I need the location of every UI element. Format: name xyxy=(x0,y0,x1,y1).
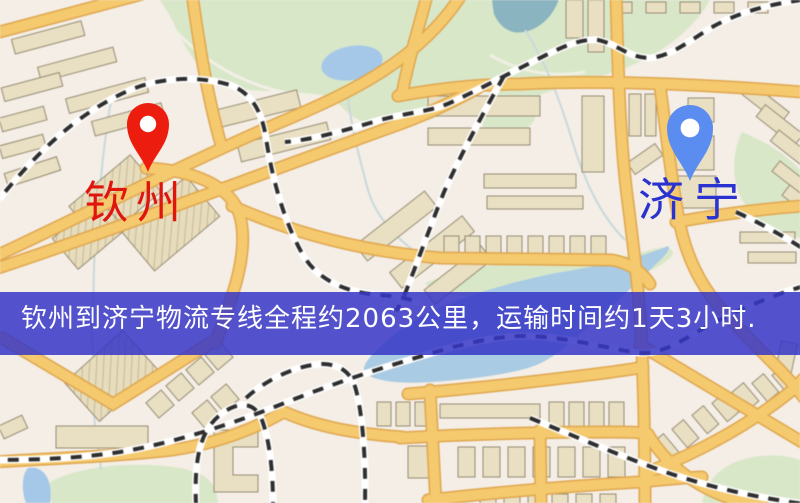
jining-label: 济宁 xyxy=(638,177,750,223)
qinzhou-label: 钦州 xyxy=(84,180,188,225)
route-info-banner: 钦州到济宁物流专线全程约2063公里，运输时间约1天3小时. xyxy=(0,292,800,355)
route-info-text: 钦州到济宁物流专线全程约2063公里，运输时间约1天3小时. xyxy=(21,304,757,334)
jining-location-pin-icon[interactable] xyxy=(664,102,716,184)
logistics-route-map: 钦州 济宁 钦州到济宁物流专线全程约2063公里，运输时间约1天3小时. xyxy=(0,0,800,503)
map-canvas xyxy=(0,0,800,503)
qinzhou-location-pin-icon[interactable] xyxy=(124,99,172,177)
